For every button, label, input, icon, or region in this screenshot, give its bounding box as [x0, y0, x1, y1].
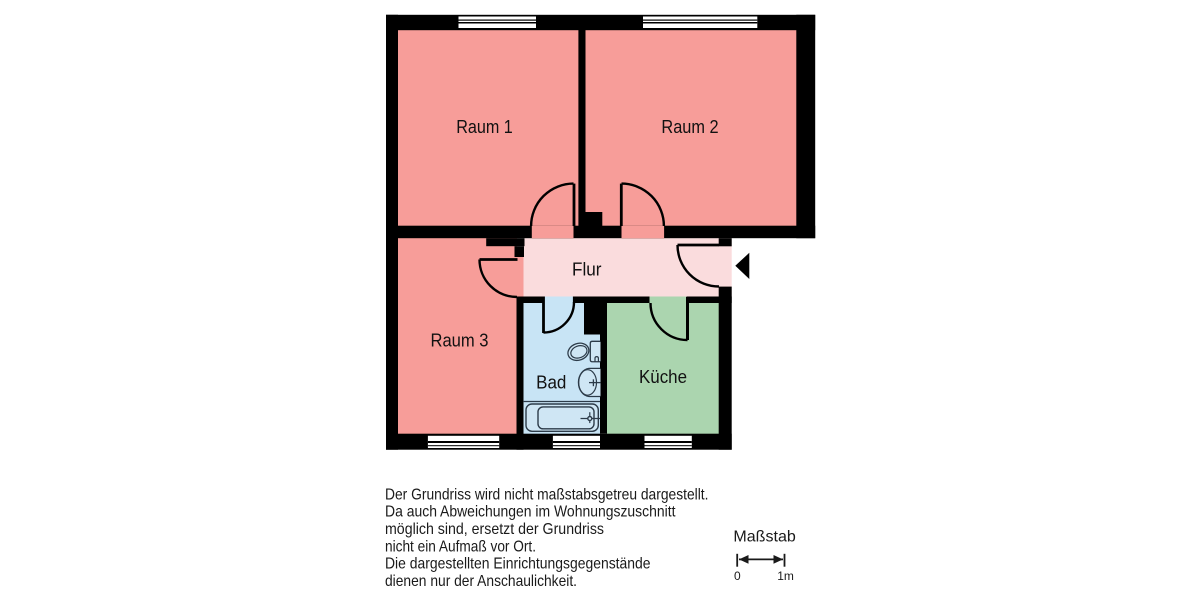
svg-text:Flur: Flur — [572, 260, 602, 280]
svg-text:nicht ein Aufmaß vor Ort.: nicht ein Aufmaß vor Ort. — [385, 539, 536, 556]
svg-text:Maßstab: Maßstab — [733, 529, 795, 546]
svg-text:1m: 1m — [777, 569, 794, 583]
svg-text:Raum 2: Raum 2 — [661, 117, 718, 137]
svg-text:Raum 3: Raum 3 — [431, 330, 489, 350]
svg-text:dienen nur der Anschaulichkeit: dienen nur der Anschaulichkeit. — [385, 573, 577, 590]
svg-text:Der Grundriss wird nicht maßst: Der Grundriss wird nicht maßstabsgetreu … — [385, 486, 709, 503]
svg-text:0: 0 — [734, 569, 741, 583]
svg-text:möglich sind, ersetzt der Grun: möglich sind, ersetzt der Grundriss — [385, 521, 604, 538]
svg-text:Die dargestellten Einrichtungs: Die dargestellten Einrichtungsgegenständ… — [385, 556, 651, 573]
svg-text:Küche: Küche — [639, 367, 687, 387]
svg-text:Da auch Abweichungen im Wohnun: Da auch Abweichungen im Wohnungszuschnit… — [385, 503, 676, 520]
svg-text:Bad: Bad — [536, 373, 566, 393]
svg-text:Raum 1: Raum 1 — [456, 117, 513, 137]
